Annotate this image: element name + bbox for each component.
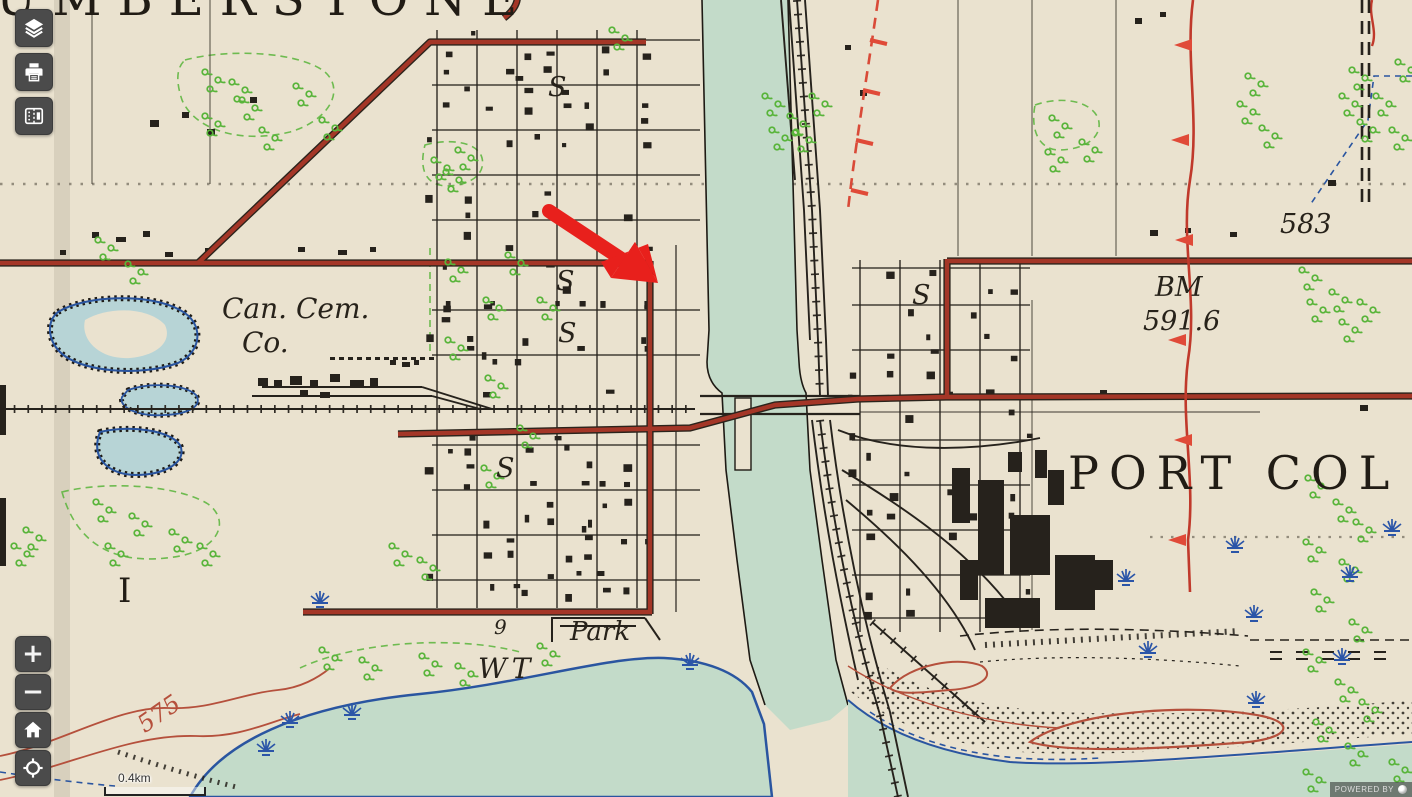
label-school-s: S	[496, 453, 515, 484]
label-humberstone: HUMBERSTONE	[0, 0, 533, 27]
compare-button[interactable]	[15, 97, 53, 135]
home-icon	[22, 719, 44, 741]
label-park: Park	[569, 617, 630, 647]
scale-bar	[104, 787, 206, 796]
label-school-s: S	[556, 266, 575, 297]
powered-by-attribution[interactable]: POWERED BY	[1330, 782, 1412, 797]
layers-icon	[23, 17, 45, 39]
scale-label: 0.4km	[118, 771, 151, 785]
label-cemetery-2: Co.	[242, 326, 289, 359]
map-canvas[interactable]: HUMBERSTONE PORT COL Can. Cem. Co. BM 59…	[0, 0, 1412, 797]
zoom-in-button[interactable]: +	[15, 636, 51, 672]
label-elevation-583: 583	[1280, 209, 1332, 240]
plus-icon: +	[22, 641, 44, 667]
locate-button[interactable]	[15, 750, 51, 786]
home-button[interactable]	[15, 712, 51, 748]
map-viewer: HUMBERSTONE PORT COL Can. Cem. Co. BM 59…	[0, 0, 1412, 797]
map-fold-shadow	[54, 0, 70, 797]
printer-icon	[23, 61, 45, 83]
label-wt: WT	[478, 652, 535, 685]
minus-icon: −	[22, 679, 44, 705]
label-nine: 9	[494, 615, 507, 639]
label-school-s: S	[912, 280, 931, 311]
label-cemetery-1: Can. Cem.	[222, 292, 369, 325]
label-school-s: S	[548, 72, 567, 103]
powered-by-logo-icon	[1398, 785, 1407, 794]
powered-by-text: POWERED BY	[1335, 785, 1394, 794]
print-button[interactable]	[15, 53, 53, 91]
label-lot-I: I	[118, 571, 131, 611]
label-benchmark-2: 591.6	[1143, 306, 1220, 337]
label-school-s: S	[558, 318, 577, 349]
layers-button[interactable]	[15, 9, 53, 47]
compare-maps-icon	[23, 105, 45, 127]
zoom-out-button[interactable]: −	[15, 674, 51, 710]
label-port-colborne: PORT COL	[1068, 446, 1399, 500]
locate-icon	[22, 757, 44, 779]
label-benchmark-1: BM	[1154, 272, 1204, 303]
